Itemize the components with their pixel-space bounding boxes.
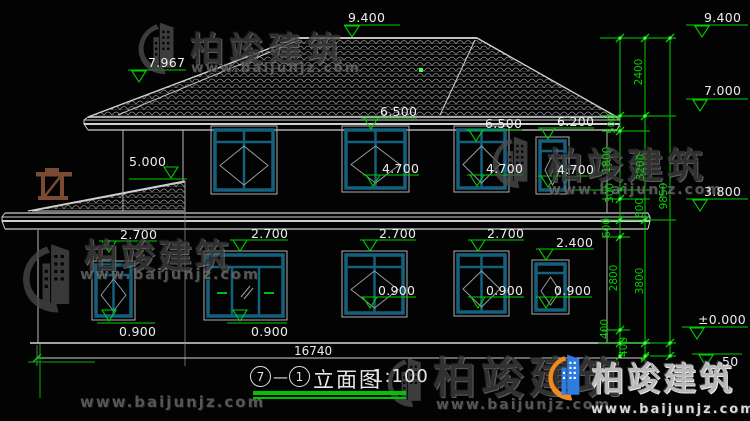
dimension-label: 400 [618,337,630,357]
dimension-label: 600 [634,198,646,218]
elevation-marker: 6.500 [380,105,417,118]
elevation-marker: 9.400 [704,11,741,24]
elevation-marker: 0.900 [554,284,591,297]
logo-building-icon [567,355,579,395]
dimension-label: 600 [601,218,613,238]
dimension-label: 9850 [658,183,670,210]
elevation-marker: 4.700 [486,162,523,175]
dimension-label: 1800 [601,147,613,174]
elevation-marker: 0.900 [378,284,415,297]
title-underline [253,397,406,399]
watermark-url: www.baijunjz.com [548,182,723,198]
brand-logo-icon [23,244,69,312]
elevation-marker: 5.000 [129,155,166,168]
axis-bubble-start: 7 [250,366,271,387]
elevation-marker: 2.700 [120,228,157,241]
elevation-marker: 4.700 [557,163,594,176]
title-underline [253,391,406,395]
watermark-url: www.baijunjz.com [80,267,260,283]
elevation-marker: 7.967 [148,56,185,69]
elevation-marker: 0.900 [119,325,156,338]
elevation-marker: 2.700 [379,227,416,240]
watermark-url: www.baijunjz.com [591,402,750,417]
dimension-label: 400 [599,319,611,339]
watermark [18,233,82,332]
watermark-url: www.baijunjz.com [191,60,361,76]
grip-dot [419,68,423,72]
title-separator: — [273,368,288,386]
dimension-label: 3800 [634,268,646,295]
trellis-decoration [36,168,72,200]
elevation-marker: 7.000 [704,84,741,97]
elevation-marker: 2.700 [251,227,288,240]
elevation-marker: 2.700 [487,227,524,240]
elevation-marker: 3.800 [704,185,741,198]
elevation-marker: 0.900 [486,284,523,297]
cad-elevation-screenshot: 柏竣建筑 www.baijunjz.com 柏竣建筑 www.baijunjz.… [0,0,750,421]
dimension-label: 2400 [633,59,645,86]
dimension-label: 500 [606,114,618,134]
elevation-marker: 6.200 [557,115,594,128]
elevation-marker: 2.400 [556,236,593,249]
elevation-marker: 4.700 [382,162,419,175]
elevation-marker: ±0.000 [698,313,746,326]
dimension-label: 3200 [635,154,647,181]
drawing-scale: 1:100 [372,366,429,387]
lower-eave-band [2,213,650,229]
site-logo [545,350,588,412]
elevation-marker: 6.500 [485,117,522,130]
elevation-marker: 50 [722,355,739,368]
window [211,126,277,194]
axis-bubble-end: 1 [289,366,310,387]
dimension-label: 2800 [608,265,620,292]
total-width-dimension: 16740 [294,344,332,358]
dimension-label: 300 [604,183,616,203]
axis-number: 1 [296,370,304,384]
axis-number: 7 [257,370,265,384]
elevation-marker: 9.400 [348,11,385,24]
watermark [133,21,185,83]
watermark-url: www.baijunjz.com [80,393,265,411]
elevation-marker: 0.900 [251,325,288,338]
